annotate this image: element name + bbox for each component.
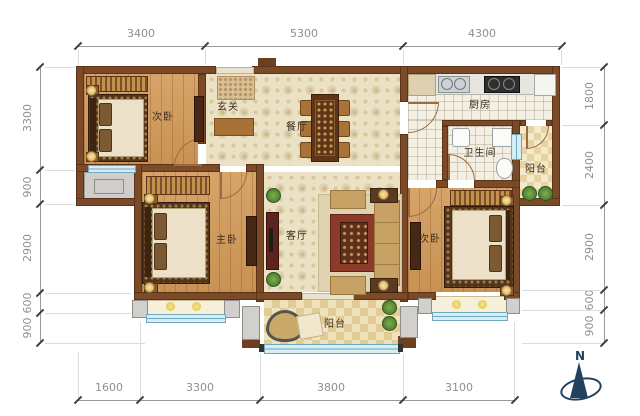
dim-label-left-5: 900 — [21, 308, 35, 348]
extension-line — [78, 50, 79, 65]
dim-label-top-1: 3400 — [111, 27, 171, 41]
compass-needle — [570, 362, 588, 398]
balcony-railing-window — [264, 344, 400, 354]
pillow — [154, 213, 167, 240]
railing-end — [259, 344, 264, 352]
extension-line — [78, 352, 79, 398]
plant-symbol — [266, 188, 281, 203]
sofa-seat — [330, 190, 366, 209]
extension-line — [562, 67, 602, 68]
wall-segment — [436, 180, 448, 188]
coffee-table-symbol — [340, 222, 368, 264]
room-label-entry: 玄关 — [206, 101, 250, 114]
bed-headboard — [145, 207, 151, 277]
tick-mark — [558, 42, 566, 50]
wall-segment — [256, 164, 264, 302]
plant-symbol — [538, 186, 553, 201]
room-label-bedroom-bottom-right: 次卧 — [408, 233, 452, 246]
dimension-line-bottom — [78, 400, 515, 401]
extension-line — [562, 205, 602, 206]
lamp-symbol — [144, 282, 155, 293]
flower-decor — [452, 300, 461, 309]
pillow — [99, 103, 112, 126]
dim-label-left-3: 2900 — [21, 228, 35, 268]
wall-segment — [76, 66, 216, 74]
plant-symbol — [382, 300, 397, 315]
extension-line — [45, 293, 131, 294]
dim-label-right-3: 2900 — [583, 227, 597, 267]
lamp-symbol — [501, 285, 512, 296]
pillow — [489, 215, 502, 242]
wall-segment — [512, 120, 520, 134]
pillow — [154, 243, 167, 270]
extension-line — [45, 343, 145, 344]
dim-label-bottom-2: 3300 — [170, 381, 230, 395]
dresser-symbol — [410, 222, 421, 270]
extension-line — [205, 50, 206, 65]
door-leaf — [174, 164, 202, 166]
extension-line — [522, 343, 602, 344]
wall-segment — [134, 292, 264, 300]
room-label-bedroom-top-left: 次卧 — [141, 111, 185, 124]
wall-segment — [442, 120, 520, 126]
dim-label-right-1: 1800 — [583, 76, 597, 116]
kitchen-cabinet — [408, 74, 436, 96]
plant-symbol — [522, 186, 537, 201]
tick-mark — [36, 339, 44, 347]
tv-screen — [269, 228, 273, 252]
lamp-symbol — [86, 85, 97, 96]
extension-line — [522, 310, 602, 311]
balcony-pier — [242, 306, 260, 340]
plant-symbol — [266, 272, 281, 287]
door-leaf — [448, 154, 450, 180]
extension-line — [45, 67, 75, 68]
dim-label-bottom-1: 1600 — [79, 381, 139, 395]
extension-line — [562, 125, 602, 126]
railing-end — [398, 344, 403, 352]
door-leaf — [220, 172, 222, 198]
sink-basin — [454, 78, 466, 90]
extension-line — [45, 313, 131, 314]
flower-decor — [478, 300, 487, 309]
toilet-symbol — [496, 158, 513, 179]
wall-segment — [134, 164, 142, 302]
bay-pier — [418, 298, 432, 314]
extension-line — [140, 322, 141, 398]
sofa-seat — [330, 276, 366, 295]
dim-label-left-2: 900 — [21, 167, 35, 207]
stove-burner — [503, 78, 515, 90]
sofa-symbol — [374, 200, 400, 286]
wall-segment — [76, 66, 84, 206]
room-label-balcony-south: 阳台 — [313, 318, 357, 331]
flower-decor — [192, 302, 201, 311]
bay-window-master — [146, 314, 226, 323]
lamp-symbol — [378, 280, 389, 291]
room-label-bathroom: 卫生间 — [458, 147, 502, 160]
pillow — [99, 129, 112, 152]
fridge-symbol — [534, 74, 556, 96]
compass-n-label: N — [572, 349, 588, 363]
bay-window-bedroom2 — [432, 312, 508, 321]
lamp-symbol — [501, 195, 512, 206]
dim-label-top-2: 5300 — [274, 27, 334, 41]
door-leaf — [408, 102, 438, 104]
bay-pier — [224, 300, 240, 318]
plant-symbol — [382, 316, 397, 331]
wall-stub-entry — [258, 58, 276, 66]
wall-segment — [256, 292, 302, 300]
lamp-symbol — [86, 151, 97, 162]
window-platform — [88, 165, 136, 173]
dim-label-right-2: 2400 — [583, 145, 597, 185]
room-label-balcony-east: 阳台 — [514, 163, 558, 176]
bay-pier — [506, 298, 520, 314]
extension-line — [45, 204, 75, 205]
bathroom-sink-symbol — [452, 128, 470, 147]
extension-line — [522, 290, 602, 291]
wall-segment — [400, 66, 408, 102]
wall-segment — [76, 198, 142, 206]
tick-mark — [511, 396, 519, 404]
bed-headboard — [90, 98, 96, 156]
room-label-dining: 餐厅 — [275, 121, 319, 134]
extension-line — [403, 354, 404, 398]
dim-label-bottom-3: 3800 — [301, 381, 361, 395]
extension-line — [403, 50, 404, 65]
window-bathroom — [511, 134, 522, 160]
equipment-platform-hatch — [94, 179, 124, 194]
extension-line — [45, 170, 75, 171]
room-label-living: 客厅 — [275, 230, 319, 243]
wardrobe-symbol — [146, 176, 210, 195]
dim-label-right-5: 900 — [583, 306, 597, 346]
dim-label-top-3: 4300 — [452, 27, 512, 41]
balcony-pier — [400, 306, 418, 338]
extension-line — [260, 354, 261, 398]
lamp-symbol — [144, 193, 155, 204]
door-leaf — [526, 126, 528, 148]
washer-symbol — [492, 128, 512, 147]
extension-line — [514, 322, 515, 398]
lamp-symbol — [378, 189, 389, 200]
flower-decor — [166, 302, 175, 311]
tv-cabinet-symbol — [194, 96, 204, 142]
pillow — [489, 245, 502, 272]
wall-segment — [474, 180, 520, 188]
floorplan-canvas: 次卧 玄关 餐厅 厨房 卫生间 阳台 主卧 客厅 次卧 阳台 3400 5300… — [0, 0, 640, 416]
extension-line — [561, 50, 562, 65]
dim-label-bottom-4: 3100 — [429, 381, 489, 395]
room-label-master: 主卧 — [205, 234, 249, 247]
sink-basin — [441, 78, 453, 90]
door-leaf — [408, 188, 410, 216]
room-label-kitchen: 厨房 — [458, 99, 502, 112]
entry-door-threshold — [216, 67, 254, 74]
entry-doormat — [217, 76, 255, 100]
stove-burner — [488, 78, 500, 90]
entry-console — [214, 118, 254, 136]
dimension-line-top — [78, 46, 562, 47]
dim-label-left-1: 3300 — [21, 98, 35, 138]
